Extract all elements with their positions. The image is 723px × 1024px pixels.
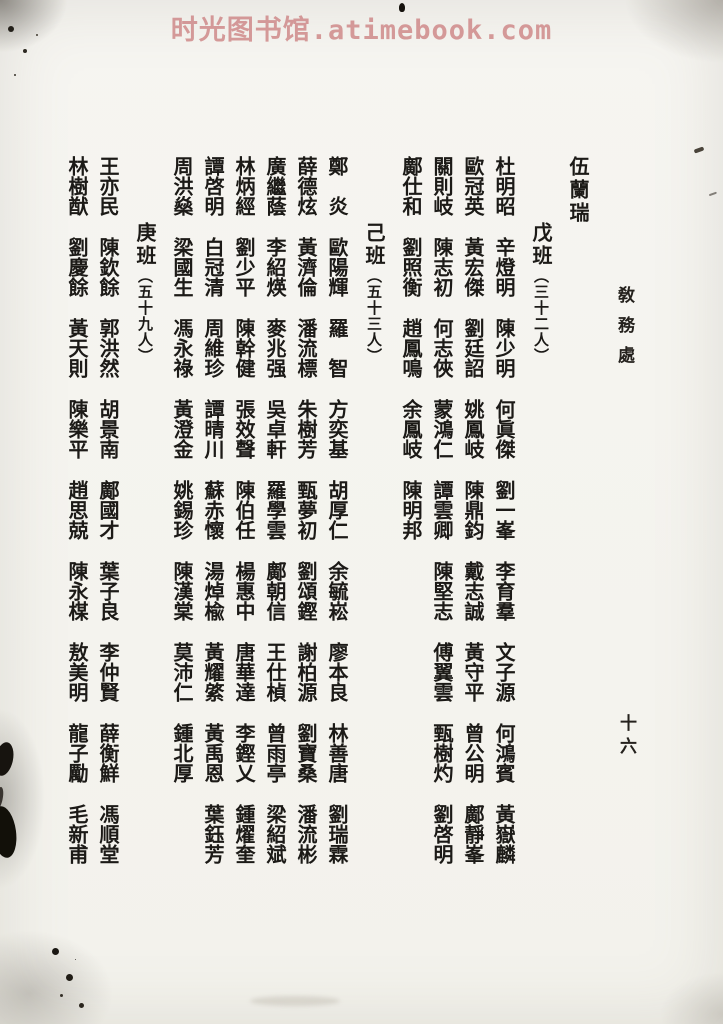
class-section: 己班（五十三人）鄭炎歐陽輝羅智方奕基胡厚仁余毓崧廖本良林善唐劉瑞霖薛德炫黃濟倫潘…: [171, 156, 389, 868]
student-name: 林善唐: [326, 723, 346, 783]
student-name: 辛燈明: [493, 237, 513, 297]
name-column: 杜明昭辛燈明陳少明何眞傑劉一峯李育羣文子源何鴻賓黃嶽麟: [493, 156, 513, 868]
student-name: 劉啓明: [431, 804, 451, 864]
name-column: 林炳經劉少平陳幹健張效聲陳伯任楊惠中唐華達李鏗乂鍾燿奎: [233, 156, 253, 868]
ink-stain: [0, 741, 16, 778]
student-name: 劉少平: [233, 237, 253, 297]
student-name: 黃濟倫: [295, 237, 315, 297]
student-name: 甄夢初: [295, 480, 315, 540]
student-name: 陳樂平: [66, 399, 86, 459]
student-name: 余鳳岐: [400, 399, 420, 459]
student-name: 李育羣: [493, 561, 513, 621]
carryover-name: 伍蘭瑞: [567, 156, 587, 868]
student-name: 王亦民: [97, 156, 117, 216]
student-name: 陳少明: [493, 318, 513, 378]
student-name: 劉寶桑: [295, 723, 315, 783]
section-count: （五十九人）: [136, 268, 152, 364]
student-name: 黃澄金: [171, 399, 191, 459]
ink-stain: [0, 805, 20, 860]
student-name: 敖美明: [66, 642, 86, 702]
name-column: 周洪燊梁國生馮永祿黃澄金姚錫珍陳漢棠莫沛仁鍾北厚: [171, 156, 191, 868]
student-name: 廖本良: [326, 642, 346, 702]
watermark-text: 时光图书馆.atimebook.com: [0, 8, 723, 47]
student-name: 黃宏傑: [462, 237, 482, 297]
student-name: 李鏗乂: [233, 723, 253, 783]
student-name: 梁紹斌: [264, 804, 284, 864]
section-header: 己班（五十三人）: [362, 222, 384, 868]
student-name: 何鴻賓: [493, 723, 513, 783]
student-name: 陳志初: [431, 237, 451, 297]
section-header: 庚班（五十九人）: [133, 222, 155, 868]
name-column: 鄭炎歐陽輝羅智方奕基胡厚仁余毓崧廖本良林善唐劉瑞霖: [326, 156, 346, 868]
student-name: 譚晴川: [202, 399, 222, 459]
student-name: 林樹猷: [66, 156, 86, 216]
student-name: 陳幹健: [233, 318, 253, 378]
name-column: 鄺仕和劉照衡趙鳳鳴余鳳岐陳明邦: [400, 156, 420, 868]
student-name: 朱樹芳: [295, 399, 315, 459]
student-name: 劉廷詔: [462, 318, 482, 378]
student-name: 劉慶餘: [66, 237, 86, 297]
student-name: 李紹煐: [264, 237, 284, 297]
student-name: 周洪燊: [171, 156, 191, 216]
student-name: 葉鈺芳: [202, 804, 222, 864]
student-name: 王仕楨: [264, 642, 284, 702]
student-name: 黃耀綮: [202, 642, 222, 702]
side-heading-department: 敎務處: [614, 286, 634, 376]
student-name: 陳漢棠: [171, 561, 191, 621]
student-name: 吳卓軒: [264, 399, 284, 459]
student-name: 趙鳳鳴: [400, 318, 420, 378]
student-name: 唐華達: [233, 642, 253, 702]
student-name: 潘流標: [295, 318, 315, 378]
section-count: （五十三人）: [365, 268, 381, 364]
ink-speckles: [52, 948, 59, 955]
name-column: 廣繼蔭李紹煐麥兆强吳卓軒羅學雲鄺朝信王仕楨曾雨亭梁紹斌: [264, 156, 284, 868]
student-name: 羅智: [326, 318, 346, 378]
student-name: 楊惠中: [233, 561, 253, 621]
student-name: 梁國生: [171, 237, 191, 297]
student-name: 文子源: [493, 642, 513, 702]
student-name: 何眞傑: [493, 399, 513, 459]
student-name: 馮永祿: [171, 318, 191, 378]
student-name: 姚鳳岐: [462, 399, 482, 459]
student-name: 劉瑞霖: [326, 804, 346, 864]
section-title: 戊班: [529, 222, 551, 268]
student-name: 馮順堂: [97, 804, 117, 864]
page-number: 十六: [616, 714, 636, 760]
paper-smudge: [250, 996, 340, 1006]
student-name: 譚雲卿: [431, 480, 451, 540]
student-name: 薛衡鮮: [97, 723, 117, 783]
student-name: 羅學雲: [264, 480, 284, 540]
student-name: 劉頌鏗: [295, 561, 315, 621]
student-name: 黃嶽麟: [493, 804, 513, 864]
name-column: 王亦民陳欽餘郭洪然胡景南鄺國才葉子良李仲賢薛衡鮮馮順堂: [97, 156, 117, 868]
name-column: 關則岐陳志初何志俠蒙鴻仁譚雲卿陳堅志傅翼雲甄樹灼劉啓明: [431, 156, 451, 868]
student-name: 胡景南: [97, 399, 117, 459]
student-name: 湯焯楡: [202, 561, 222, 621]
student-name: 廣繼蔭: [264, 156, 284, 216]
student-name: 白冠清: [202, 237, 222, 297]
section-title: 己班: [362, 222, 384, 268]
student-name: 余毓崧: [326, 561, 346, 621]
name-column: 林樹猷劉慶餘黃天則陳樂平趙思兢陳永楳敖美明龍子勵毛新甫: [66, 156, 86, 868]
student-name: 傅翼雲: [431, 642, 451, 702]
section-header: 戊班（三十二人）: [529, 222, 551, 868]
roster-content: 伍蘭瑞 戊班（三十二人）杜明昭辛燈明陳少明何眞傑劉一峯李育羣文子源何鴻賓黃嶽麟歐…: [66, 156, 587, 868]
student-name: 陳堅志: [431, 561, 451, 621]
ink-speckle: [399, 3, 405, 12]
class-section: 庚班（五十九人）王亦民陳欽餘郭洪然胡景南鄺國才葉子良李仲賢薛衡鮮馮順堂林樹猷劉慶…: [66, 156, 160, 868]
student-name: 鄭炎: [326, 156, 346, 216]
student-name: 劉照衡: [400, 237, 420, 297]
student-name: 歐冠英: [462, 156, 482, 216]
student-name: 方奕基: [326, 399, 346, 459]
name-column: 譚啓明白冠清周維珍譚晴川蘇赤懷湯焯楡黃耀綮黃禹恩葉鈺芳: [202, 156, 222, 868]
student-name: 鄺靜峯: [462, 804, 482, 864]
student-name: 李仲賢: [97, 642, 117, 702]
student-name: 林炳經: [233, 156, 253, 216]
student-name: 陳鼎鈞: [462, 480, 482, 540]
student-name: 鄺國才: [97, 480, 117, 540]
scanned-page: 时光图书馆.atimebook.com 敎務處 十六 伍蘭瑞 戊班（三十二人）杜…: [0, 0, 723, 1024]
ink-speckles: [8, 26, 14, 32]
student-name: 黃守平: [462, 642, 482, 702]
student-name: 杜明昭: [493, 156, 513, 216]
section-count: （三十二人）: [532, 268, 548, 364]
student-name: 鍾燿奎: [233, 804, 253, 864]
student-name: 關則岐: [431, 156, 451, 216]
student-name: 甄樹灼: [431, 723, 451, 783]
student-name: 陳明邦: [400, 480, 420, 540]
student-name: 鍾北厚: [171, 723, 191, 783]
student-name: 胡厚仁: [326, 480, 346, 540]
student-name: 蘇赤懷: [202, 480, 222, 540]
section-title: 庚班: [133, 222, 155, 268]
student-name: 譚啓明: [202, 156, 222, 216]
student-name: 曾公明: [462, 723, 482, 783]
student-name: 陳伯任: [233, 480, 253, 540]
student-name: 歐陽輝: [326, 237, 346, 297]
student-name: 何志俠: [431, 318, 451, 378]
class-section: 戊班（三十二人）杜明昭辛燈明陳少明何眞傑劉一峯李育羣文子源何鴻賓黃嶽麟歐冠英黃宏…: [400, 156, 556, 868]
student-name: 潘流彬: [295, 804, 315, 864]
student-name: 鄺朝信: [264, 561, 284, 621]
student-name: 陳欽餘: [97, 237, 117, 297]
student-name: 郭洪然: [97, 318, 117, 378]
student-name: 趙思兢: [66, 480, 86, 540]
student-name: 陳永楳: [66, 561, 86, 621]
ink-speckle: [694, 146, 705, 153]
student-name: 鄺仕和: [400, 156, 420, 216]
student-name: 蒙鴻仁: [431, 399, 451, 459]
student-name: 張效聲: [233, 399, 253, 459]
student-name: 黃天則: [66, 318, 86, 378]
student-name: 薛德炫: [295, 156, 315, 216]
student-name: 毛新甫: [66, 804, 86, 864]
student-name: 龍子勵: [66, 723, 86, 783]
student-name: 周維珍: [202, 318, 222, 378]
student-name: 葉子良: [97, 561, 117, 621]
student-name: 莫沛仁: [171, 642, 191, 702]
student-name: 麥兆强: [264, 318, 284, 378]
name-column: 薛德炫黃濟倫潘流標朱樹芳甄夢初劉頌鏗謝柏源劉寶桑潘流彬: [295, 156, 315, 868]
student-name: 劉一峯: [493, 480, 513, 540]
student-name: 黃禹恩: [202, 723, 222, 783]
student-name: 姚錫珍: [171, 480, 191, 540]
student-name: 謝柏源: [295, 642, 315, 702]
student-name: 曾雨亭: [264, 723, 284, 783]
name-column: 歐冠英黃宏傑劉廷詔姚鳳岐陳鼎鈞戴志誠黃守平曾公明鄺靜峯: [462, 156, 482, 868]
student-name: 戴志誠: [462, 561, 482, 621]
